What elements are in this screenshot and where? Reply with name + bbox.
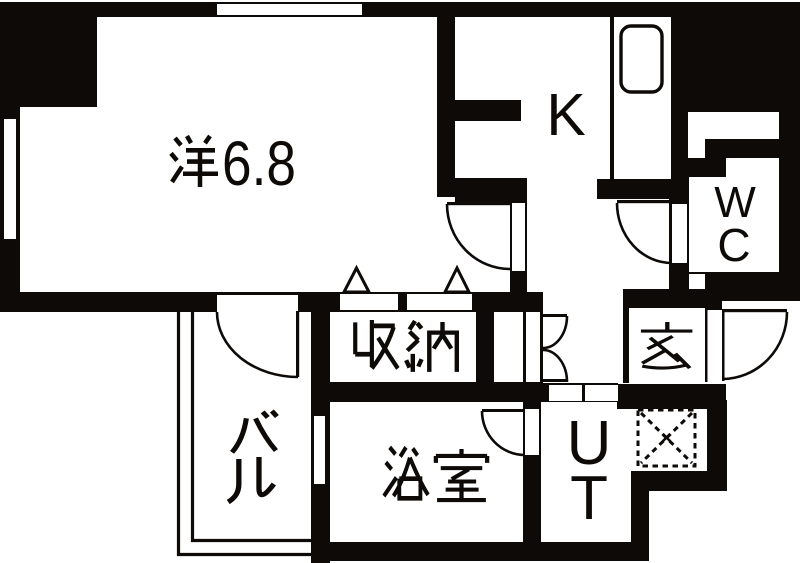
svg-text:T: T (570, 464, 608, 533)
svg-text:K: K (546, 82, 585, 148)
svg-text:6.8: 6.8 (222, 129, 296, 199)
svg-text:C: C (717, 219, 750, 271)
